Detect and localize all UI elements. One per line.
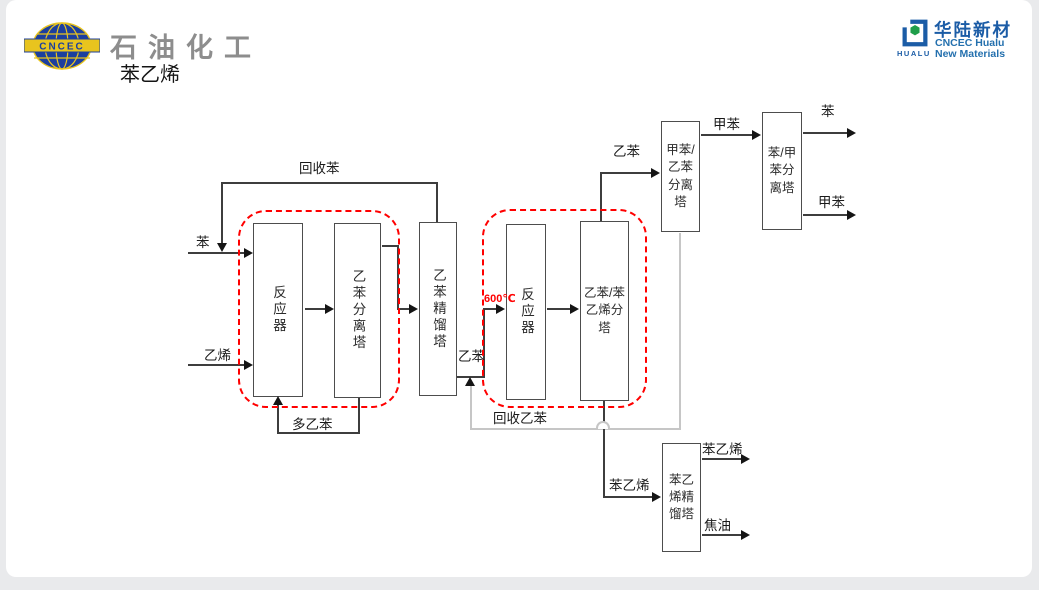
styrene-mid-arrow [652, 492, 661, 502]
label-line: 离塔 [769, 181, 794, 195]
recycle-eb-riser [470, 386, 472, 430]
highlight-box-alkylation-section [238, 210, 400, 408]
toluene-out-line [803, 214, 849, 216]
tar-out-line [702, 534, 743, 536]
line-crossover-hop [596, 421, 610, 429]
highlight-box-dehydrogenation-section [482, 209, 647, 408]
poly-ethylbenzene-label: 多乙苯 [292, 413, 333, 433]
label-line: 烯精 [669, 490, 694, 504]
recycle-eb-line [470, 428, 681, 430]
ethylbenzene-distillation-tower-label: 乙苯精馏塔 [428, 268, 448, 351]
label-line: 苯/甲 [768, 146, 796, 160]
poly-eb-riser [277, 405, 279, 433]
label-line: 馏塔 [669, 507, 694, 521]
eb-top-arrow [651, 168, 660, 178]
toluene-out-arrow [847, 210, 856, 220]
eb-top-line [600, 172, 653, 174]
ethylbenzene-mid-label: 乙苯 [458, 345, 485, 365]
styrene-mid-label: 苯乙烯 [609, 474, 650, 494]
recycle-benzene-arrow [217, 243, 227, 252]
benzene-out-line [803, 132, 849, 134]
benzene-out-label: 苯 [821, 100, 835, 120]
recycle-benzene-riser [436, 182, 438, 222]
page-title: 苯乙烯 [120, 58, 180, 87]
tar-out-label: 焦油 [704, 514, 731, 534]
presentation-page: CNCEC 石油化工 苯乙烯 HUALU 华陆新材 CNCEC Hualu Ne… [0, 0, 1039, 590]
recycle-benzene-downcomer [221, 182, 223, 244]
label-line: 分离 [668, 178, 693, 192]
styrene-out-line [702, 458, 743, 460]
cncec-logo-text: CNCEC [39, 42, 85, 53]
ethylbenzene-top-label: 乙苯 [613, 140, 640, 160]
styrene-out-label: 苯乙烯 [702, 438, 743, 458]
label-line: 苯乙 [669, 473, 694, 487]
toluene-eb-separation-tower: 甲苯/ 乙苯 分离 塔 [661, 121, 700, 232]
recycle-eb-join-arrow [465, 377, 475, 386]
cncec-logo: CNCEC [24, 20, 100, 72]
hualu-en-line2: New Materials [935, 48, 1005, 60]
toluene-mid-line [701, 134, 754, 136]
recycle-ethylbenzene-label: 回收乙苯 [493, 407, 547, 427]
styrene-mid-line [603, 496, 654, 498]
toluene-mid-label: 甲苯 [713, 113, 740, 133]
label-line: 塔 [674, 195, 687, 209]
benzene-toluene-separation-tower-label: 苯/甲 苯分 离塔 [768, 145, 796, 197]
styrene-distillation-tower: 苯乙 烯精 馏塔 [662, 443, 701, 552]
label-line: 乙苯 [668, 160, 693, 174]
tar-out-arrow [741, 530, 750, 540]
toluene-mid-arrow [752, 130, 761, 140]
label-line: 苯分 [769, 163, 794, 177]
benzene-out-arrow [847, 128, 856, 138]
recycle-benzene-line [221, 182, 438, 184]
styrene-distillation-tower-label: 苯乙 烯精 馏塔 [669, 472, 694, 524]
hualu-logo-icon [899, 17, 931, 49]
hualu-icon-word: HUALU [897, 49, 931, 58]
ebtower-to-distill-arrow [409, 304, 418, 314]
recycle-benzene-label: 回收苯 [299, 157, 340, 177]
label-line: 甲苯/ [666, 143, 694, 157]
ethylbenzene-distillation-tower: 乙苯精馏塔 [419, 222, 457, 396]
toluene-eb-separation-tower-label: 甲苯/ 乙苯 分离 塔 [666, 142, 694, 211]
recycle-eb-downcomer [679, 233, 681, 430]
toluene-out-label: 甲苯 [818, 191, 845, 211]
styrene-drop [603, 401, 605, 497]
ethylene-feed-label: 乙烯 [204, 344, 231, 364]
benzene-toluene-separation-tower: 苯/甲 苯分 离塔 [762, 112, 802, 230]
benzene-feed-label: 苯 [196, 231, 210, 251]
